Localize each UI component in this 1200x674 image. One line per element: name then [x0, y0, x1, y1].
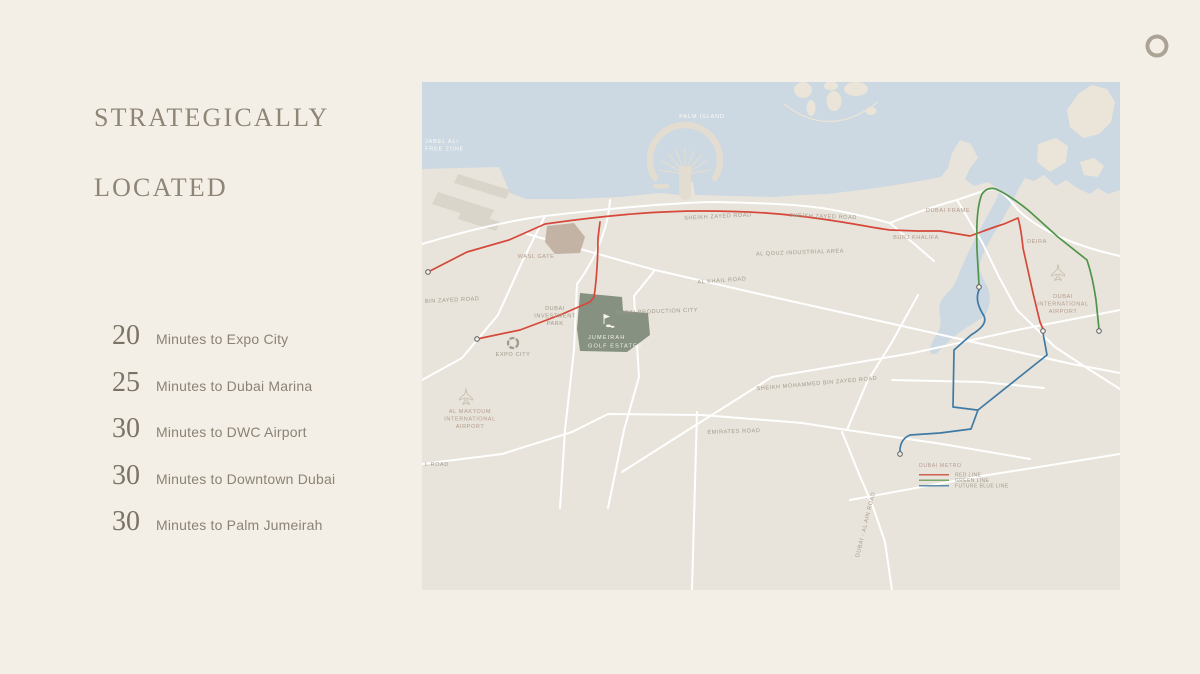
brand-swirl-logo	[1142, 31, 1172, 61]
page-title-line2: LOCATED	[94, 173, 228, 202]
list-item: 25 Minutes to Dubai Marina	[112, 367, 335, 397]
list-item: 20 Minutes to Expo City	[112, 320, 335, 350]
stat-label: Minutes to Downtown Dubai	[156, 471, 335, 487]
swirl-center	[1154, 43, 1161, 50]
map-label: BURJ KHALIFA	[893, 235, 939, 241]
page-title-line1: STRATEGICALLY	[94, 103, 329, 132]
map-label: JABEL ALIFREE ZONE	[425, 139, 464, 153]
map-label: FUTURE BLUE LINE	[955, 484, 1009, 490]
stat-value: 20	[112, 320, 143, 352]
map-container: JABEL ALIFREE ZONEPALM ISLANDSHEIKH ZAYE…	[422, 82, 1120, 590]
stat-label: Minutes to DWC Airport	[156, 424, 307, 440]
map-label: EXPO CITY	[496, 352, 531, 358]
travel-time-list: 20 Minutes to Expo City 25 Minutes to Du…	[112, 320, 335, 553]
list-item: 30 Minutes to DWC Airport	[112, 413, 335, 443]
map-label: DEIRA	[1027, 239, 1047, 245]
list-item: 30 Minutes to Palm Jumeirah	[112, 506, 335, 536]
dubai-map: JABEL ALIFREE ZONEPALM ISLANDSHEIKH ZAYE…	[422, 82, 1120, 590]
map-label: DUBAI FRAME	[926, 208, 970, 214]
map-label: DUBAI METRO	[919, 463, 962, 469]
map-label: PALM ISLAND	[679, 114, 724, 120]
stat-label: Minutes to Expo City	[156, 331, 288, 347]
stat-value: 30	[112, 460, 143, 492]
stat-label: Minutes to Dubai Marina	[156, 378, 312, 394]
stat-value: 30	[112, 506, 143, 538]
list-item: 30 Minutes to Downtown Dubai	[112, 460, 335, 490]
slide-strategically-located: { "title": {"line1": "STRATEGICALLY", "l…	[0, 0, 1200, 674]
stat-value: 30	[112, 413, 143, 445]
page-title: STRATEGICALLY LOCATED	[94, 100, 329, 205]
map-label: WASL GATE	[518, 254, 555, 260]
stat-label: Minutes to Palm Jumeirah	[156, 517, 323, 533]
map-label: L ROAD	[425, 462, 449, 468]
stat-value: 25	[112, 367, 143, 399]
